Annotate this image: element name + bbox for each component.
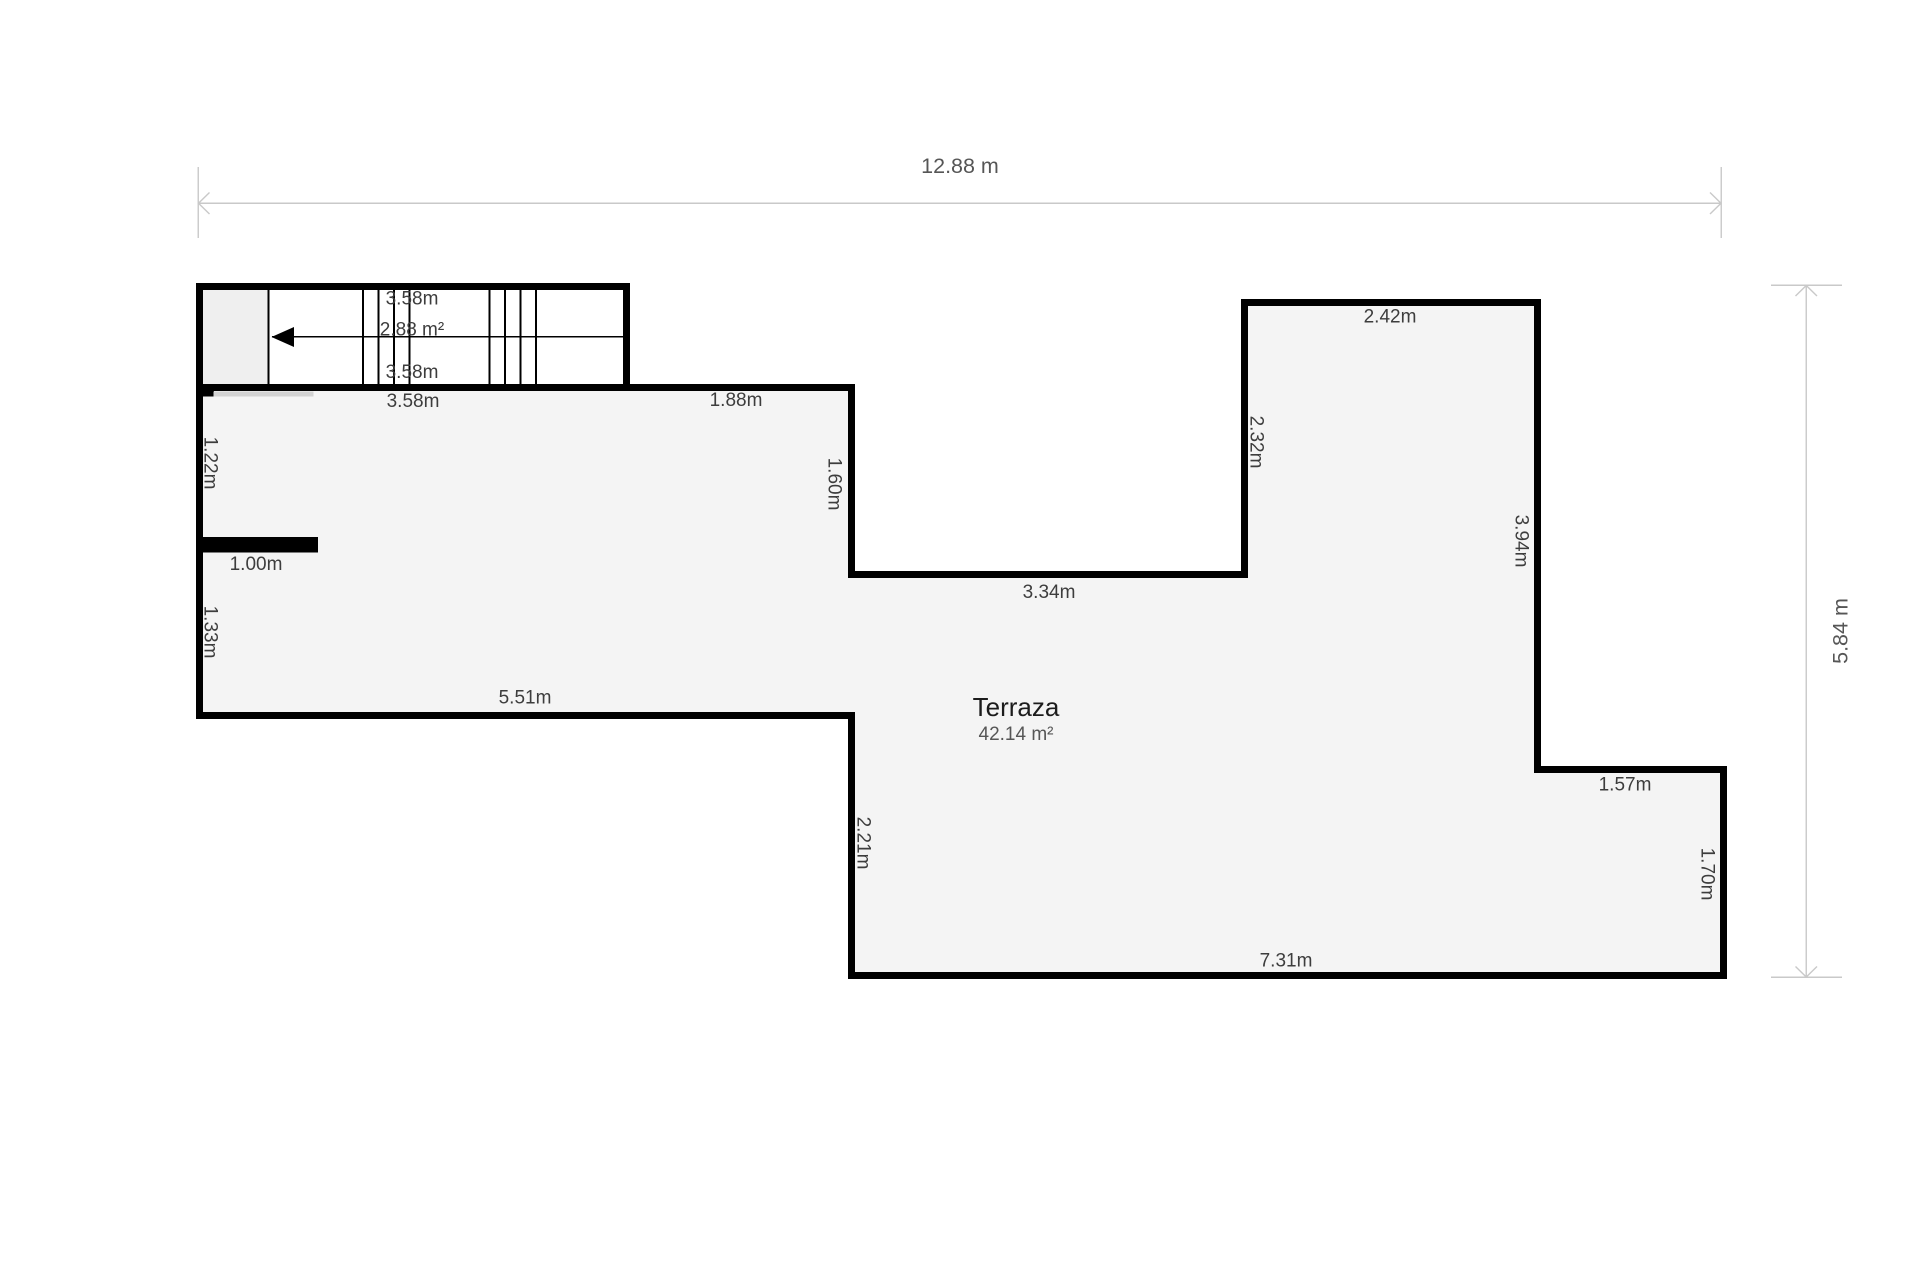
svg-text:1.22m: 1.22m	[200, 437, 221, 490]
svg-text:3.58m: 3.58m	[387, 391, 440, 412]
svg-text:5.51m: 5.51m	[499, 688, 552, 709]
svg-text:1.00m: 1.00m	[230, 554, 283, 575]
svg-text:2.88 m²: 2.88 m²	[380, 320, 444, 341]
svg-text:3.34m: 3.34m	[1023, 582, 1076, 603]
svg-text:42.14 m²: 42.14 m²	[979, 724, 1054, 745]
svg-text:7.31m: 7.31m	[1260, 951, 1313, 972]
svg-text:5.84 m: 5.84 m	[1829, 598, 1853, 664]
svg-text:1.57m: 1.57m	[1599, 775, 1652, 796]
svg-text:2.42m: 2.42m	[1364, 307, 1417, 328]
svg-text:3.94m: 3.94m	[1511, 515, 1532, 568]
svg-text:1.33m: 1.33m	[200, 606, 221, 659]
svg-text:Terraza: Terraza	[973, 692, 1060, 722]
svg-text:3.58m: 3.58m	[386, 289, 439, 310]
svg-text:1.60m: 1.60m	[824, 458, 845, 511]
svg-text:1.88m: 1.88m	[710, 390, 763, 411]
svg-text:2.32m: 2.32m	[1246, 416, 1267, 469]
svg-text:12.88 m: 12.88 m	[921, 154, 999, 178]
svg-text:2.21m: 2.21m	[853, 817, 874, 870]
svg-text:3.58m: 3.58m	[386, 362, 439, 383]
svg-text:1.70m: 1.70m	[1697, 848, 1718, 901]
